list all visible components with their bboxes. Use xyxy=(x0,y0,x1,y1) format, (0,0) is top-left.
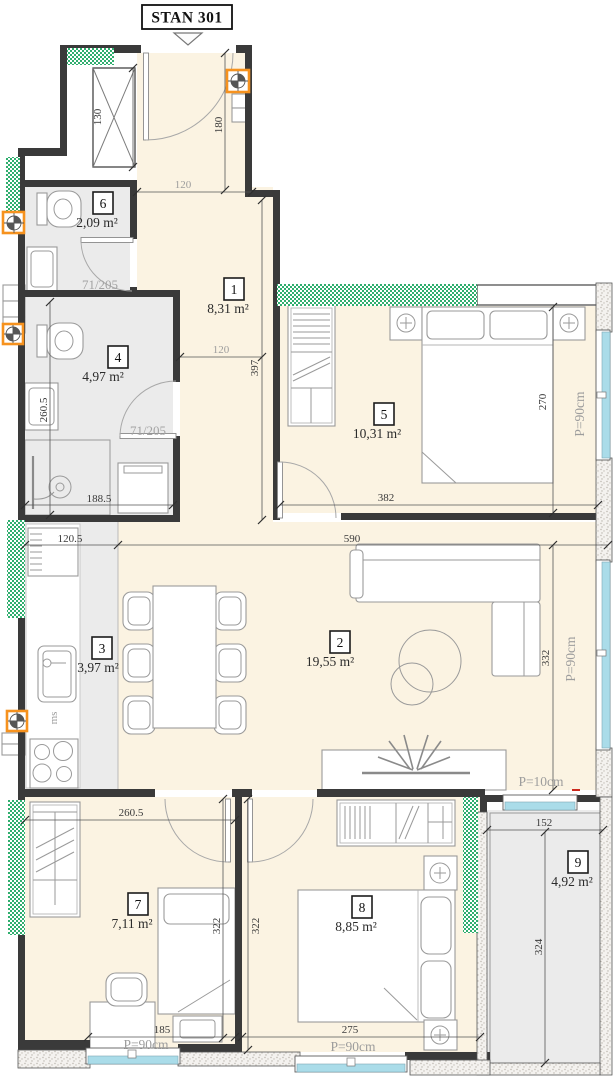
room-area: 2,09 m² xyxy=(76,215,118,230)
north-pointer-icon xyxy=(174,33,202,45)
terrace-door-window xyxy=(503,790,580,810)
exterior-wall-band xyxy=(477,285,598,305)
room-number: 6 xyxy=(100,196,107,211)
green-wall xyxy=(6,157,20,215)
survey-marker-icon xyxy=(227,70,249,92)
room-area: 7,11 m² xyxy=(111,916,152,931)
door-label-wc: 71/205 xyxy=(82,277,118,292)
toilet-bowl xyxy=(47,323,83,359)
green-wall xyxy=(463,797,478,933)
room-number: 2 xyxy=(337,635,344,650)
dim-590: 590 xyxy=(344,533,361,545)
kitchen-fixtures xyxy=(26,524,80,788)
toilet-tank xyxy=(37,325,47,357)
dim-120-top: 120 xyxy=(175,179,192,191)
entrance-door-leaf xyxy=(144,53,149,140)
parapet-terrace: P=10cm xyxy=(518,774,564,789)
green-wall xyxy=(8,800,25,935)
dim-270: 270 xyxy=(537,393,549,410)
pillow xyxy=(427,311,484,339)
parapet-bedroom5: P=90cm xyxy=(572,391,587,437)
floor-plan-stan-301: 130 180 120 120 397 260.5 188.5 382 270 … xyxy=(0,0,614,1079)
room-number: 9 xyxy=(575,855,582,870)
dim-152: 152 xyxy=(536,817,553,829)
room-area: 10,31 m² xyxy=(353,426,401,441)
floor-hall-mid xyxy=(137,187,273,297)
dim-185: 185 xyxy=(154,1024,171,1036)
floor-hall-corridor xyxy=(180,297,273,522)
pillow xyxy=(490,311,547,339)
floor-plan-drawing: 130 180 120 120 397 260.5 188.5 382 270 … xyxy=(0,0,614,1079)
dishwasher-label: ms xyxy=(48,712,60,725)
dim-120-hall: 120 xyxy=(213,344,230,356)
room-area: 8,31 m² xyxy=(207,301,249,316)
room-number: 5 xyxy=(381,407,388,422)
dim-180: 180 xyxy=(213,116,225,133)
title-block: STAN 301 xyxy=(142,5,232,45)
toilet-tank xyxy=(37,193,47,225)
survey-marker-icon xyxy=(3,324,23,344)
dim-382: 382 xyxy=(378,492,395,504)
dim-397: 397 xyxy=(249,359,261,376)
dim-260-5-room7: 260.5 xyxy=(119,807,144,819)
room-number: 4 xyxy=(115,350,122,365)
dim-120-5: 120.5 xyxy=(58,533,83,545)
dining-table xyxy=(153,586,216,728)
room-area: 3,97 m² xyxy=(77,660,119,675)
green-wall xyxy=(7,520,25,618)
survey-marker-icon xyxy=(3,212,24,233)
room-number: 3 xyxy=(99,641,106,656)
wc-door-leaf xyxy=(81,238,133,243)
green-wall xyxy=(67,48,114,65)
room-area: 8,85 m² xyxy=(335,919,377,934)
parapet-bedroom7: P=90cm xyxy=(123,1037,169,1052)
dim-322-room8: 322 xyxy=(250,918,262,935)
room-area: 4,97 m² xyxy=(82,369,124,384)
dim-322-room7: 322 xyxy=(211,918,223,935)
kitchen-sink xyxy=(38,646,76,702)
dim-260-5-bath: 260.5 xyxy=(38,397,50,422)
dim-332: 332 xyxy=(540,650,552,667)
bedroom5-door-leaf xyxy=(278,462,283,518)
tv-stand xyxy=(322,750,506,790)
dim-324: 324 xyxy=(533,938,545,955)
window-living xyxy=(596,560,610,750)
room-area: 4,92 m² xyxy=(551,874,593,889)
dim-188-5: 188.5 xyxy=(87,493,112,505)
window-bedroom5 xyxy=(596,330,610,460)
dim-130: 130 xyxy=(92,108,104,125)
pillow xyxy=(421,897,451,954)
green-wall xyxy=(277,284,477,306)
pillow xyxy=(421,961,451,1018)
parapet-living: P=90cm xyxy=(563,636,578,682)
door-label-bath: 71/205 xyxy=(130,423,166,438)
dim-275: 275 xyxy=(342,1024,359,1036)
survey-marker-icon xyxy=(7,711,27,731)
room-number: 8 xyxy=(359,900,366,915)
bedroom7-door-leaf xyxy=(226,799,231,862)
floor-terrace xyxy=(487,810,605,1068)
page-title: STAN 301 xyxy=(151,10,222,27)
parapet-bedroom8: P=90cm xyxy=(330,1039,376,1054)
room-number: 1 xyxy=(231,282,238,297)
room-area: 19,55 m² xyxy=(306,654,354,669)
washing-machine xyxy=(118,463,168,513)
room-number: 7 xyxy=(135,897,142,912)
window-bedroom8 xyxy=(295,1056,407,1072)
